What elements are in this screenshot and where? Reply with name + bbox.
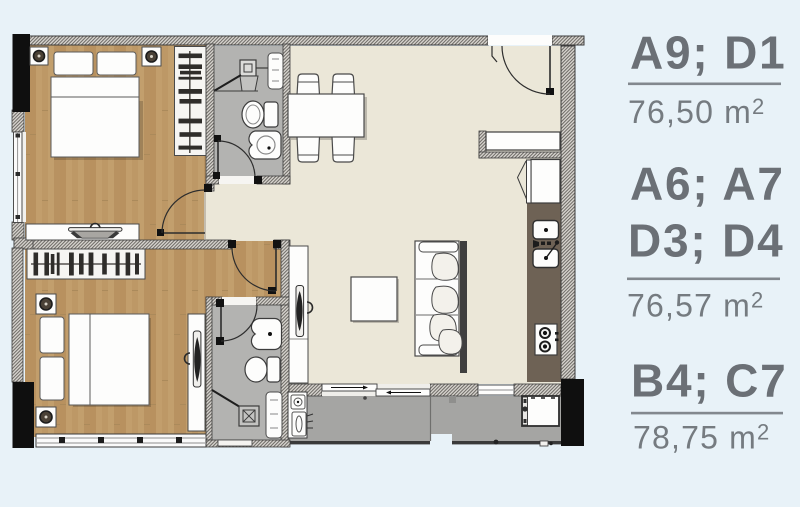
svg-text:D3; D4: D3; D4 <box>628 215 785 267</box>
svg-text:B4; C7: B4; C7 <box>631 355 788 407</box>
svg-text:A9; D1: A9; D1 <box>630 27 787 79</box>
svg-text:A6; A7: A6; A7 <box>630 158 785 210</box>
svg-text:78,75 m2: 78,75 m2 <box>633 420 770 456</box>
svg-text:76,50 m2: 76,50 m2 <box>628 94 765 130</box>
svg-text:76,57 m2: 76,57 m2 <box>627 288 764 324</box>
